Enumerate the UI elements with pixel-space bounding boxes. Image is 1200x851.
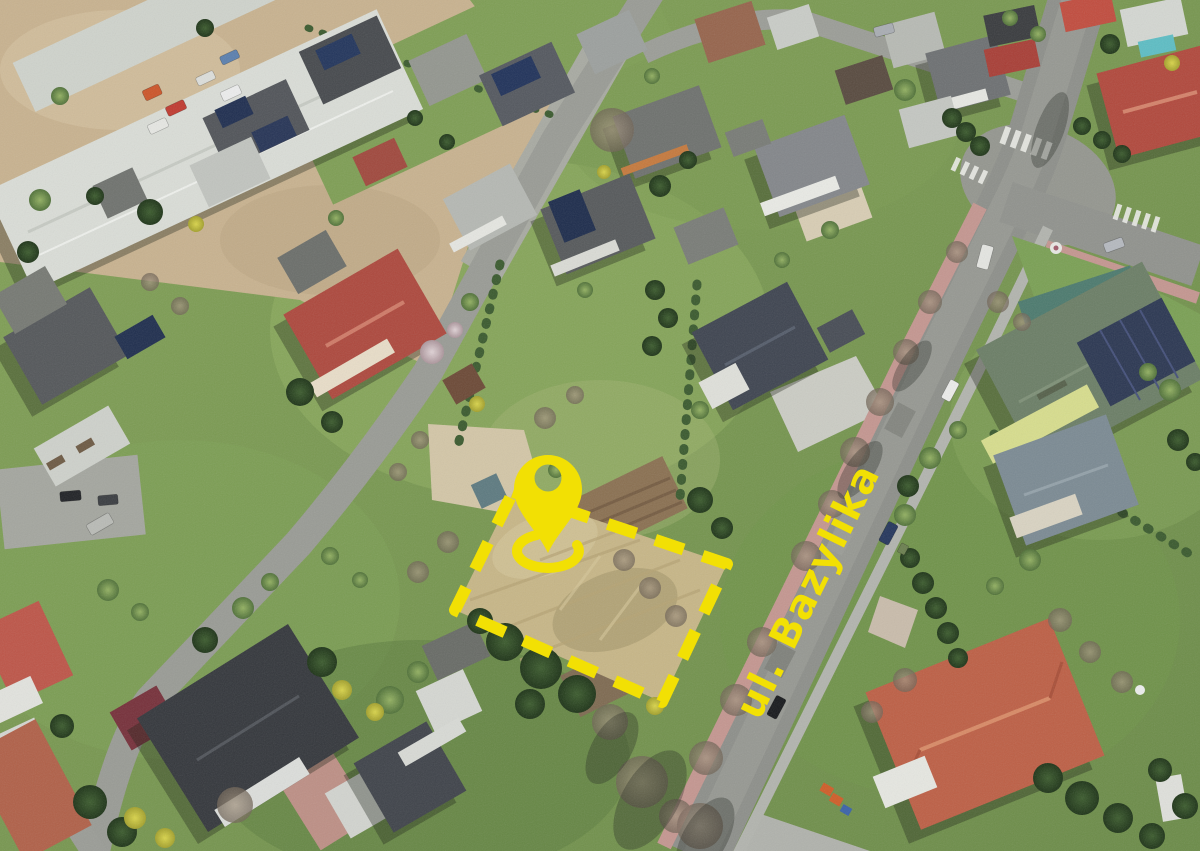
- aerial-scene: ul. Bazylika: [0, 0, 1200, 851]
- listing-aerial-photo: ul. Bazylika: [0, 0, 1200, 851]
- photo-grain: [0, 0, 1200, 851]
